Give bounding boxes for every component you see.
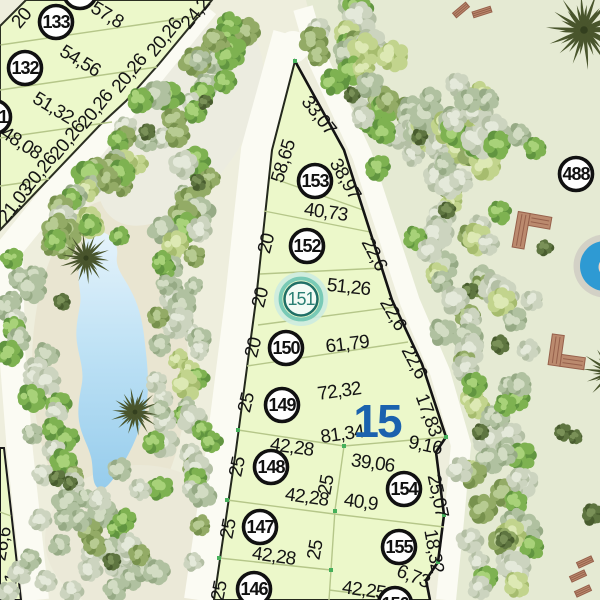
- svg-text:156: 156: [381, 594, 409, 600]
- svg-text:488: 488: [562, 164, 590, 184]
- svg-text:15: 15: [353, 395, 402, 447]
- svg-text:151: 151: [287, 289, 315, 309]
- svg-text:134: 134: [66, 0, 94, 2]
- svg-text:149: 149: [268, 395, 296, 415]
- svg-text:154: 154: [390, 479, 418, 499]
- svg-text:148: 148: [257, 457, 285, 477]
- svg-text:131: 131: [0, 107, 8, 127]
- svg-text:153: 153: [301, 171, 329, 191]
- svg-text:146: 146: [240, 579, 268, 599]
- svg-text:155: 155: [385, 537, 413, 557]
- svg-text:132: 132: [11, 58, 39, 78]
- svg-text:152: 152: [293, 236, 321, 256]
- svg-text:147: 147: [246, 517, 274, 537]
- svg-text:133: 133: [42, 12, 70, 32]
- svg-text:25: 25: [315, 473, 339, 496]
- svg-text:25: 25: [304, 538, 328, 561]
- svg-text:150: 150: [272, 338, 300, 358]
